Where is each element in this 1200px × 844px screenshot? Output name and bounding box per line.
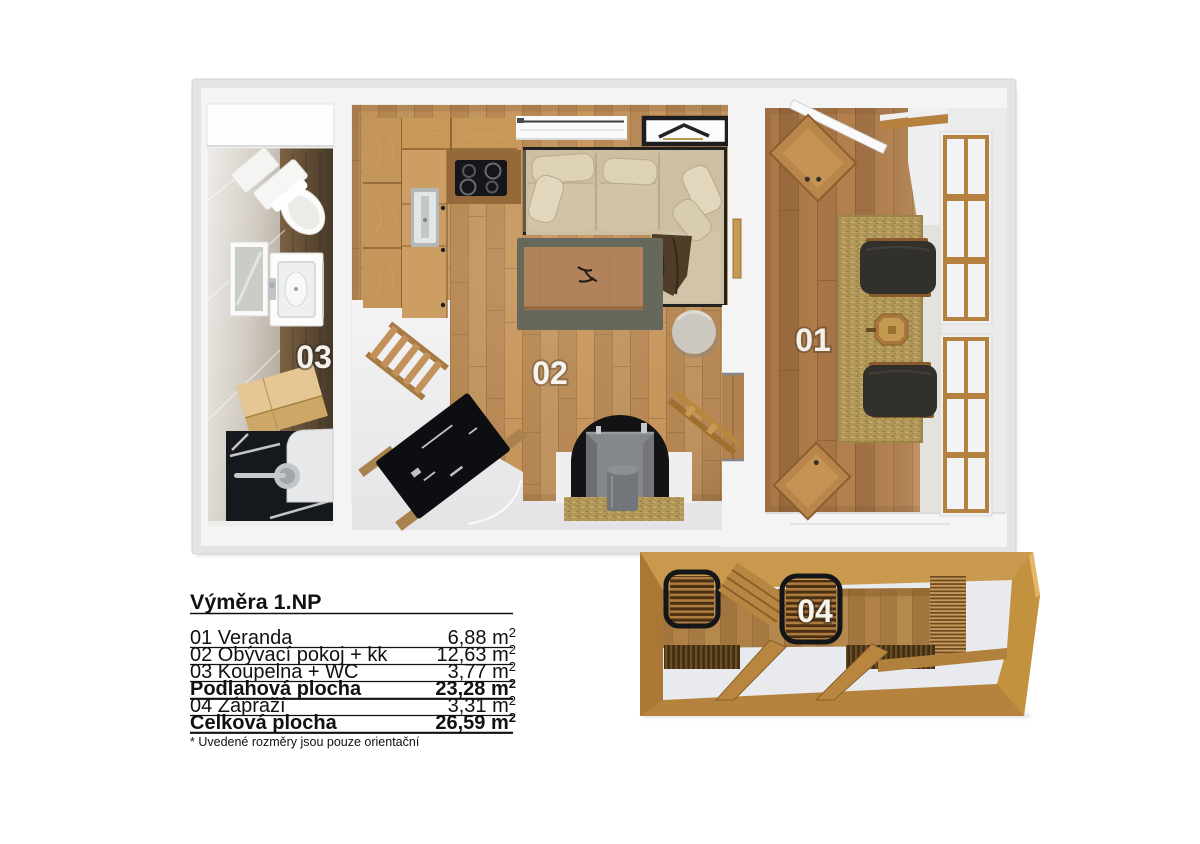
svg-text:Výměra 1.NP: Výměra 1.NP <box>190 590 321 614</box>
svg-text:03: 03 <box>296 339 332 375</box>
svg-text:01: 01 <box>795 322 831 358</box>
svg-text:02: 02 <box>532 355 568 391</box>
svg-text:26,59 m2: 26,59 m2 <box>435 710 516 734</box>
svg-text:* Uvedené rozměry jsou pouze o: * Uvedené rozměry jsou pouze orientační <box>190 735 420 749</box>
svg-text:Celková plocha: Celková plocha <box>190 712 338 734</box>
svg-text:04: 04 <box>797 593 833 629</box>
